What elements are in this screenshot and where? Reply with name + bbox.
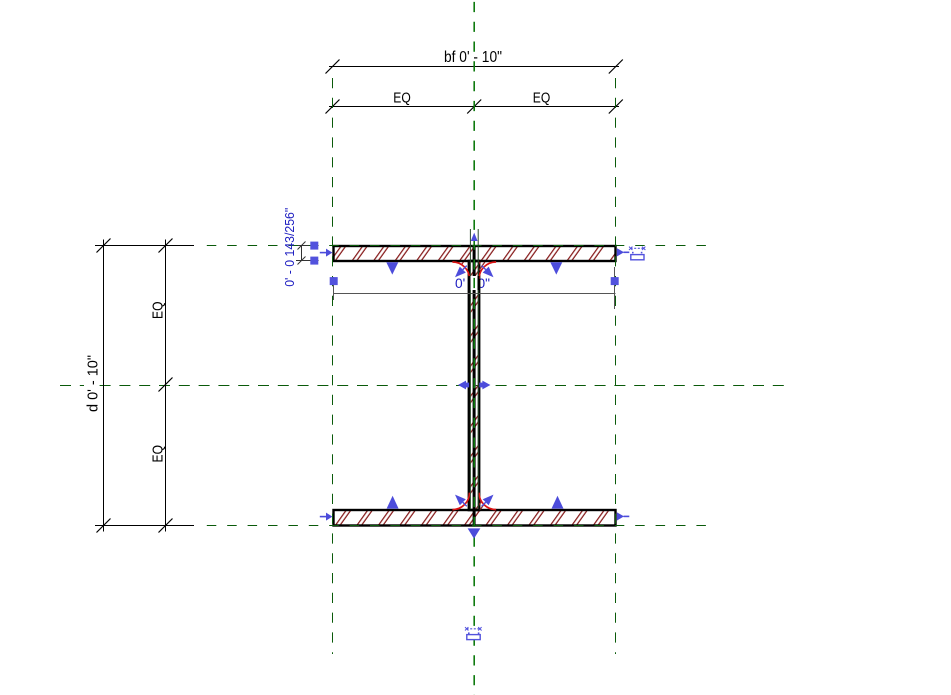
svg-text:EQ: EQ — [151, 445, 167, 463]
svg-text:EQ: EQ — [393, 91, 411, 107]
svg-text:EQ: EQ — [151, 302, 167, 320]
svg-text:0' - 0 143/256": 0' - 0 143/256" — [283, 208, 297, 287]
svg-text:d 0' - 10": d 0' - 10" — [85, 355, 102, 412]
svg-text:EQ: EQ — [533, 91, 551, 107]
svg-text:bf 0' - 10": bf 0' - 10" — [444, 49, 502, 66]
